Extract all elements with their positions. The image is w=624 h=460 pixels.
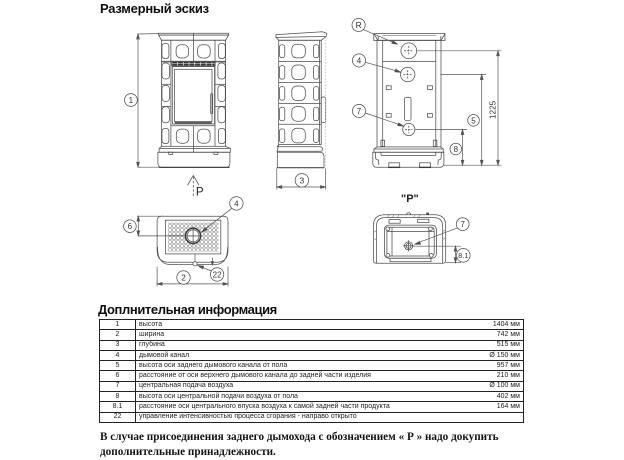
svg-text:P: P (196, 186, 204, 199)
svg-text:2: 2 (181, 273, 186, 283)
svg-text:4: 4 (234, 199, 239, 208)
svg-text:1225: 1225 (488, 100, 497, 119)
svg-text:22: 22 (213, 271, 222, 280)
svg-text:"Р": "Р" (401, 193, 419, 205)
svg-text:8.1: 8.1 (458, 251, 468, 260)
svg-text:4: 4 (357, 57, 362, 66)
svg-text:7: 7 (460, 220, 465, 229)
svg-text:1: 1 (129, 96, 134, 105)
svg-text:7: 7 (357, 107, 362, 116)
svg-text:5: 5 (471, 116, 476, 125)
svg-text:8: 8 (454, 145, 459, 154)
svg-text:3: 3 (300, 175, 305, 185)
svg-text:6: 6 (128, 222, 133, 231)
svg-text:R: R (356, 20, 362, 30)
